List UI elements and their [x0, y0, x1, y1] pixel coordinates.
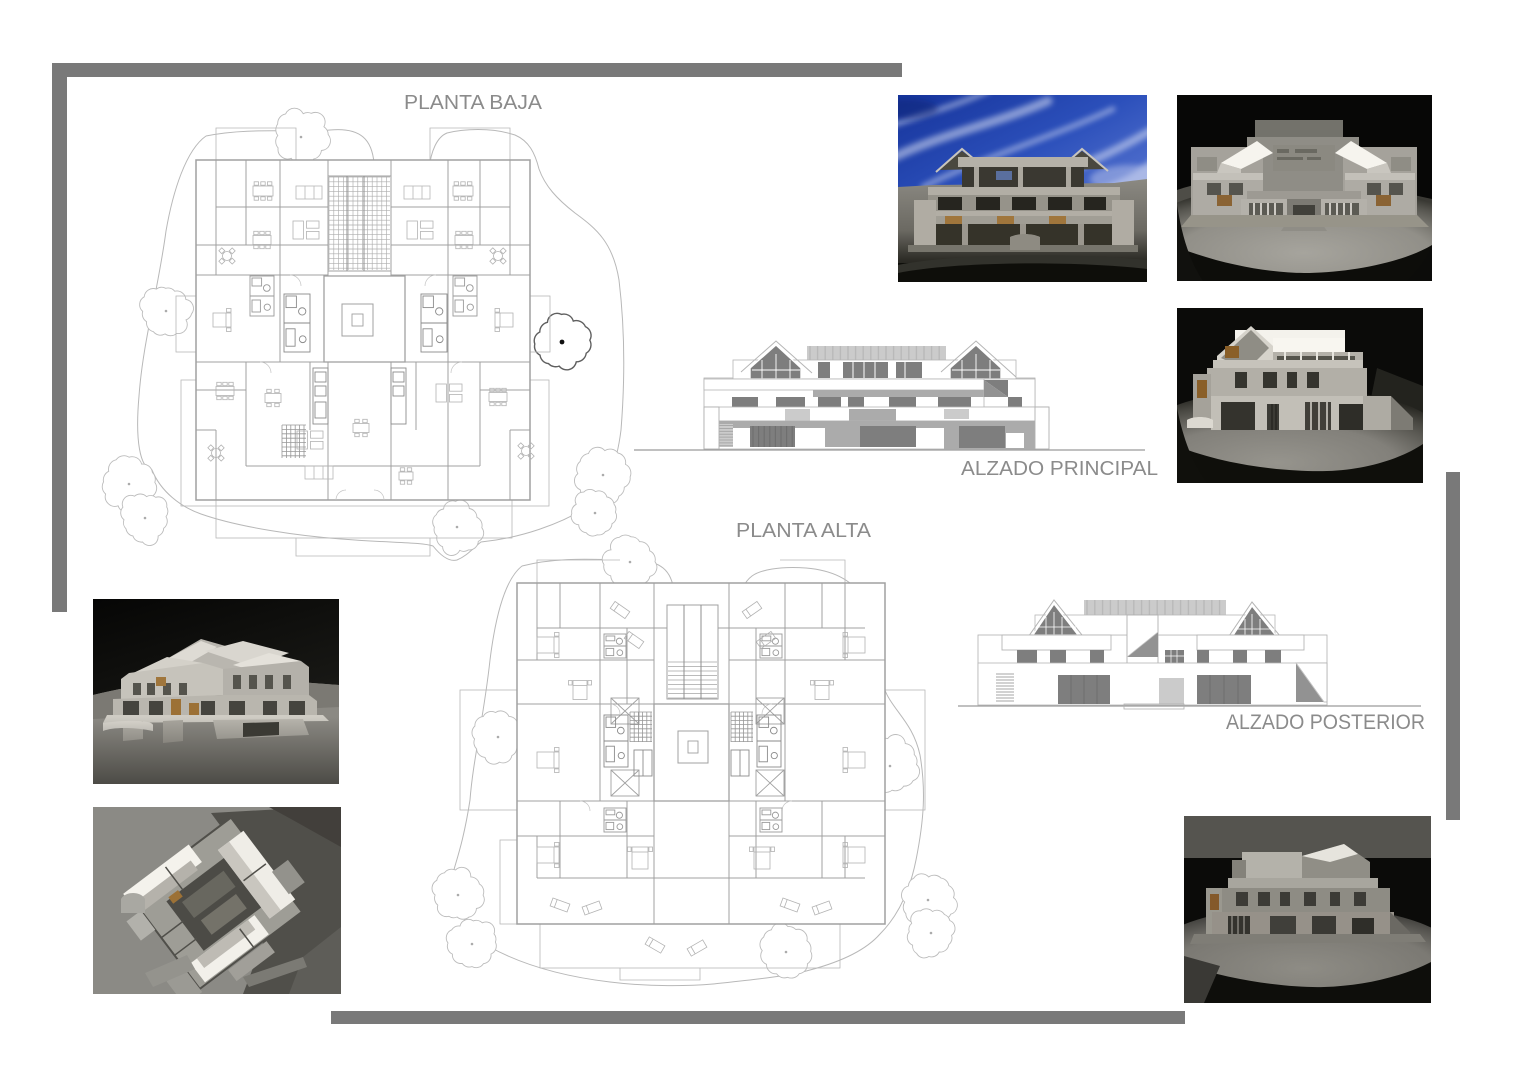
svg-text:PLANTA ALTA: PLANTA ALTA [736, 520, 872, 542]
svg-text:PLANTA BAJA: PLANTA BAJA [404, 92, 543, 114]
svg-text:ALZADO POSTERIOR: ALZADO POSTERIOR [1226, 711, 1425, 734]
svg-text:ALZADO PRINCIPAL: ALZADO PRINCIPAL [961, 458, 1158, 480]
